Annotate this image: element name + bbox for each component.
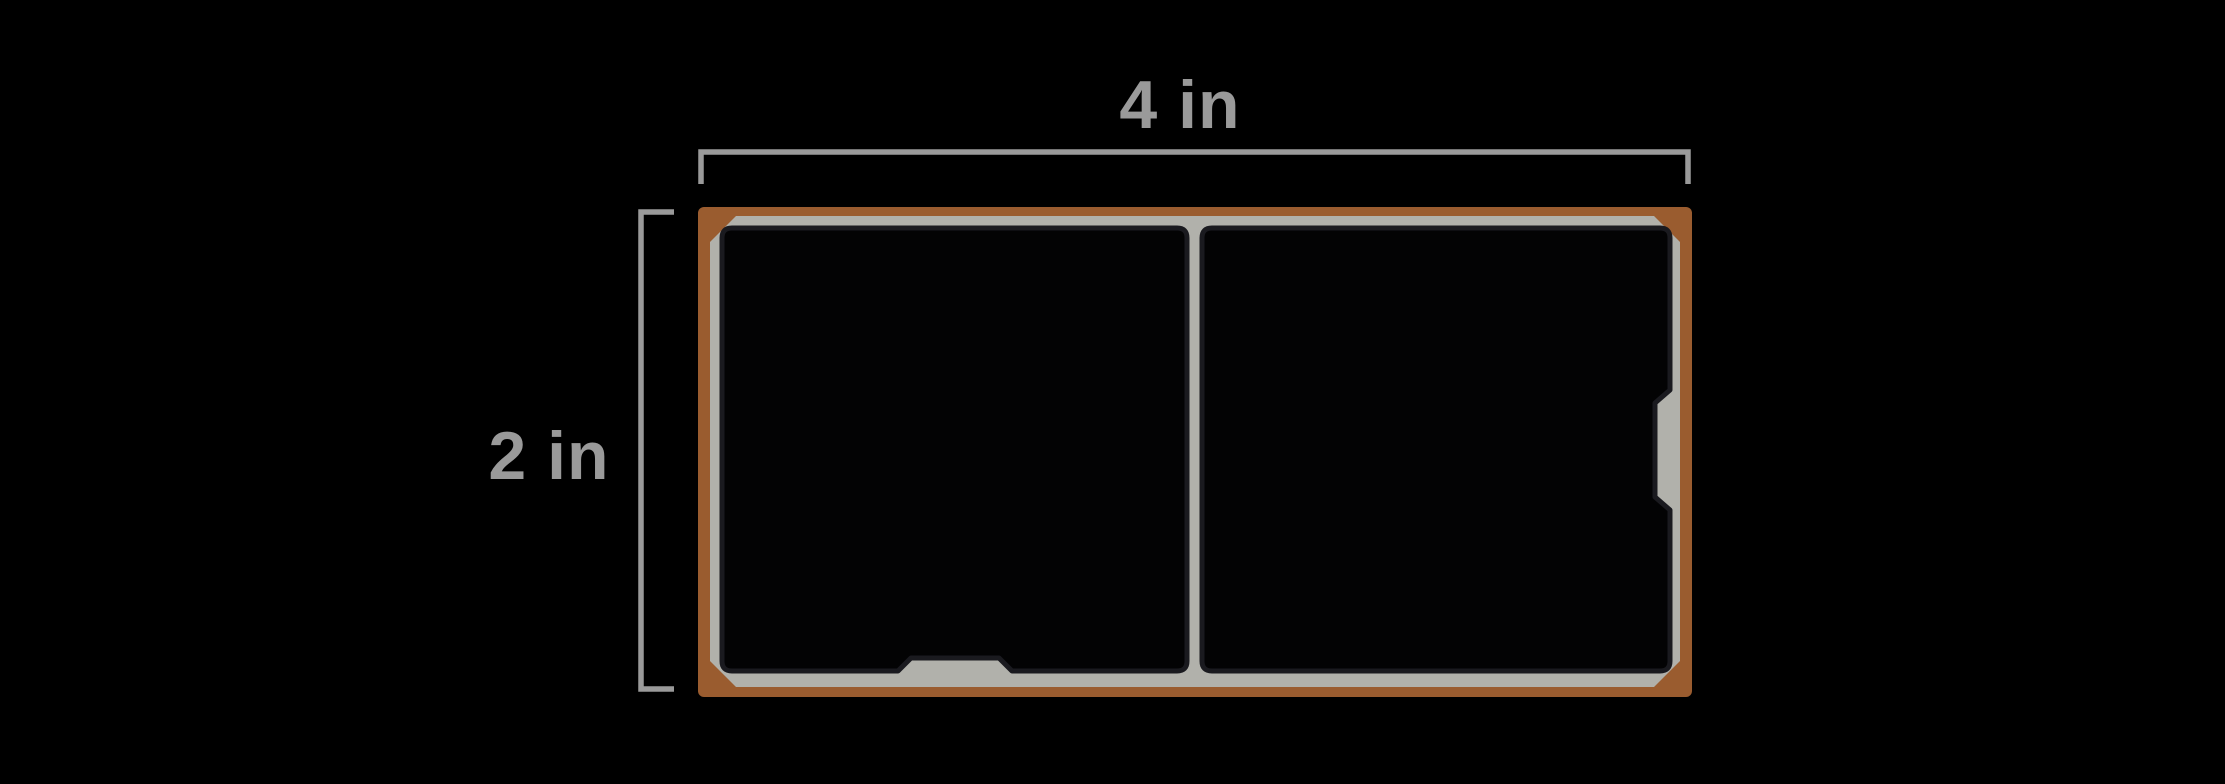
height-label: 2 in (488, 418, 609, 494)
rectangle-dimension-diagram: 4 in 2 in (0, 0, 2225, 784)
left-section (722, 228, 1187, 671)
width-dimension-line (701, 152, 1688, 184)
height-dimension-line (641, 212, 674, 689)
diagram-canvas: 4 in 2 in (0, 0, 2225, 784)
right-section (1202, 228, 1670, 671)
width-label: 4 in (1119, 67, 1240, 143)
